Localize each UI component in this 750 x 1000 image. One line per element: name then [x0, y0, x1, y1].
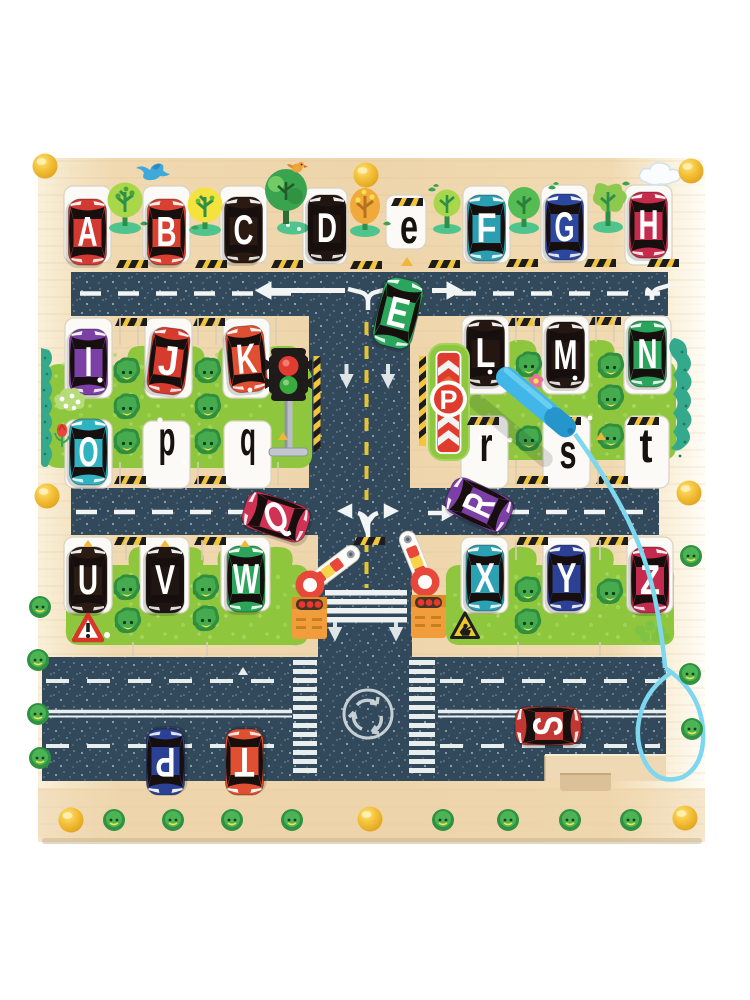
svg-text:P: P	[439, 385, 457, 415]
svg-text:S: S	[524, 716, 571, 736]
svg-text:K: K	[234, 334, 258, 383]
svg-text:M: M	[554, 331, 578, 378]
svg-text:V: V	[155, 556, 175, 603]
svg-text:G: G	[555, 203, 575, 250]
svg-text:C: C	[234, 206, 254, 253]
svg-text:O: O	[79, 428, 99, 475]
svg-text:X: X	[475, 554, 495, 601]
svg-text:q: q	[240, 413, 256, 466]
svg-text:N: N	[638, 330, 658, 377]
svg-text:t: t	[640, 420, 653, 473]
svg-text:L: L	[476, 329, 496, 376]
svg-text:A: A	[78, 208, 98, 255]
svg-text:T: T	[234, 739, 254, 786]
svg-text:r: r	[480, 419, 493, 472]
svg-text:Y: Y	[557, 554, 577, 601]
svg-text:I: I	[85, 338, 93, 385]
svg-text:H: H	[639, 201, 659, 248]
svg-text:F: F	[477, 204, 497, 251]
svg-text:W: W	[233, 555, 259, 602]
svg-text:e: e	[400, 201, 418, 254]
svg-text:P: P	[156, 739, 176, 786]
svg-text:D: D	[317, 204, 337, 251]
svg-text:B: B	[157, 208, 177, 255]
svg-text:U: U	[78, 556, 98, 603]
